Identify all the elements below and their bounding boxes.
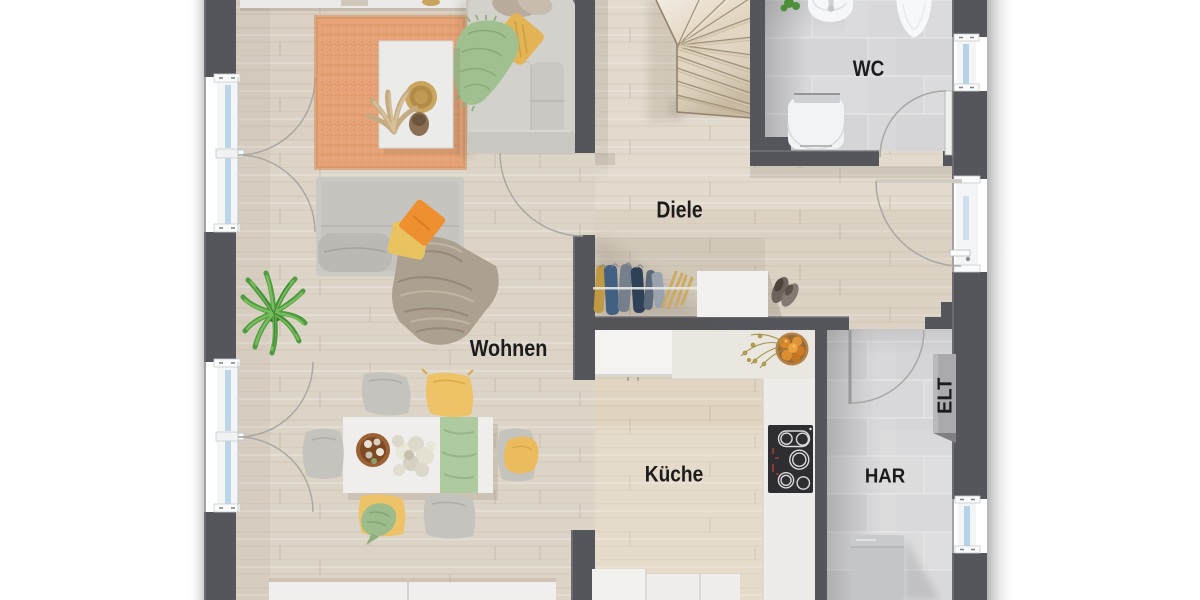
svg-text:ELT: ELT [935,378,957,414]
svg-text:HAR: HAR [865,465,905,488]
svg-text:Wohnen: Wohnen [470,336,548,362]
svg-text:Küche: Küche [645,462,703,487]
svg-text:Diele: Diele [656,198,702,223]
svg-text:WC: WC [853,56,885,81]
